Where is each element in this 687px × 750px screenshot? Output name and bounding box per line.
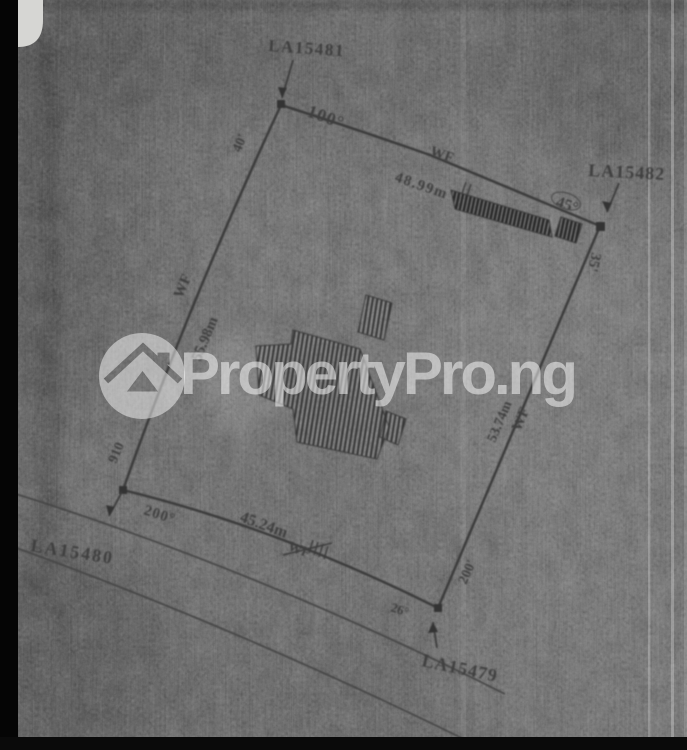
svg-text:LA15482: LA15482 [588,160,666,184]
svg-text:PropertyPro.ng: PropertyPro.ng [180,340,578,407]
